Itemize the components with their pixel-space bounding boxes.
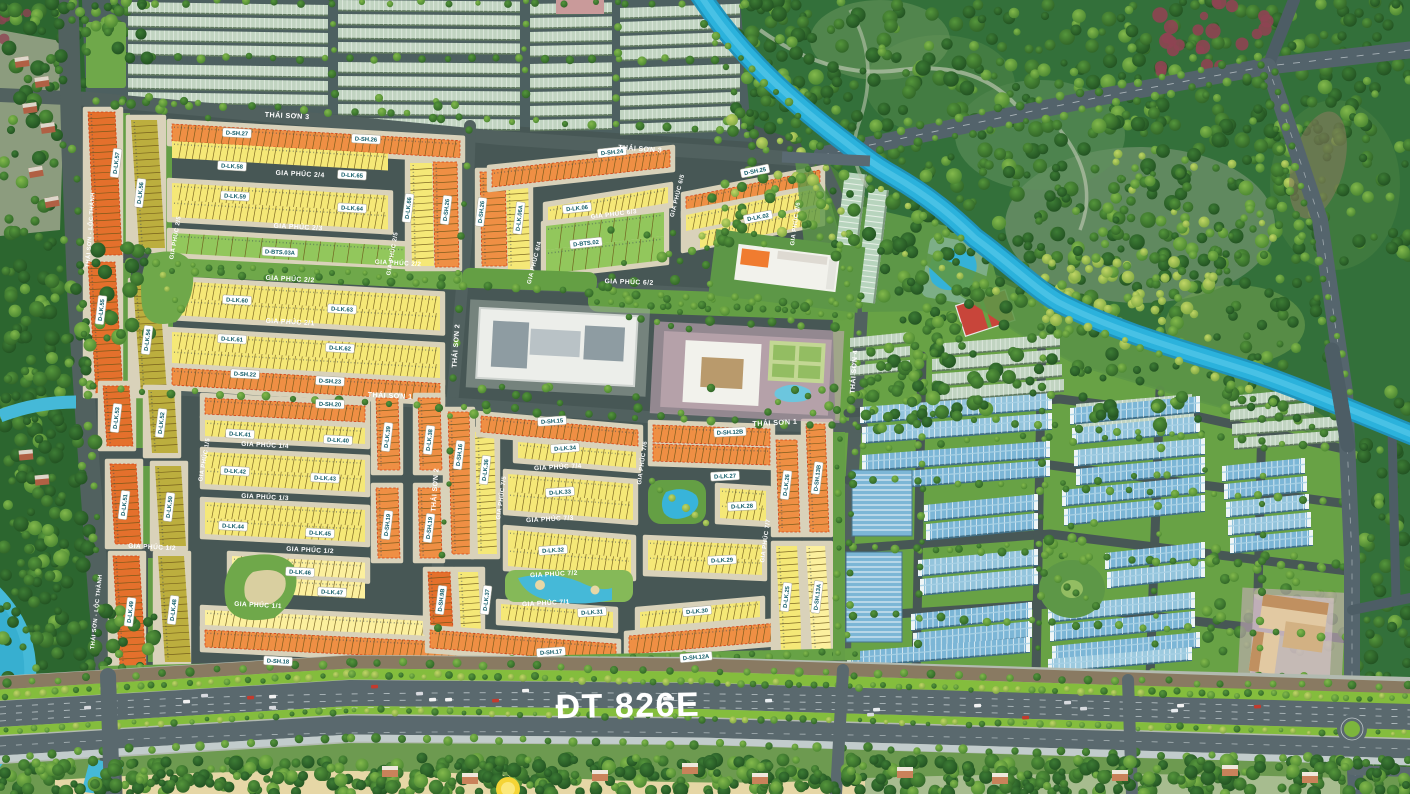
svg-text:D-LK.47: D-LK.47 <box>321 590 343 597</box>
svg-text:D-LK.42: D-LK.42 <box>224 469 246 476</box>
svg-text:D-LK.58: D-LK.58 <box>221 164 244 171</box>
svg-text:D-SH.18: D-SH.18 <box>267 659 290 666</box>
svg-text:D-LK.40: D-LK.40 <box>327 438 349 445</box>
svg-text:D-SH.27: D-SH.27 <box>226 131 249 138</box>
svg-text:D-SH.22: D-SH.22 <box>234 372 257 379</box>
svg-text:D-LK.59: D-LK.59 <box>224 194 247 201</box>
svg-text:D-LK.65: D-LK.65 <box>341 173 364 180</box>
svg-text:D-LK.63: D-LK.63 <box>331 307 354 314</box>
svg-text:D-LK.44: D-LK.44 <box>222 524 245 531</box>
svg-text:D-LK.28: D-LK.28 <box>731 503 754 510</box>
svg-text:D-SH.23: D-SH.23 <box>319 379 342 386</box>
svg-text:D-SH.20: D-SH.20 <box>319 402 341 409</box>
svg-text:D-LK.41: D-LK.41 <box>229 432 252 439</box>
svg-text:D-LK.46: D-LK.46 <box>289 570 312 577</box>
svg-text:D-LK.60: D-LK.60 <box>226 298 248 305</box>
svg-text:D-LK.45: D-LK.45 <box>309 531 332 538</box>
svg-text:D-LK.62: D-LK.62 <box>329 346 351 353</box>
svg-text:ĐT 826E: ĐT 826E <box>555 686 700 727</box>
svg-text:D-SH.26: D-SH.26 <box>355 137 378 144</box>
svg-text:D-LK.43: D-LK.43 <box>314 476 337 483</box>
svg-text:D-LK.27: D-LK.27 <box>714 474 736 481</box>
svg-text:D-LK.64: D-LK.64 <box>341 206 364 213</box>
svg-text:D-LK.29: D-LK.29 <box>711 557 734 564</box>
svg-text:D-LK.61: D-LK.61 <box>221 337 244 344</box>
